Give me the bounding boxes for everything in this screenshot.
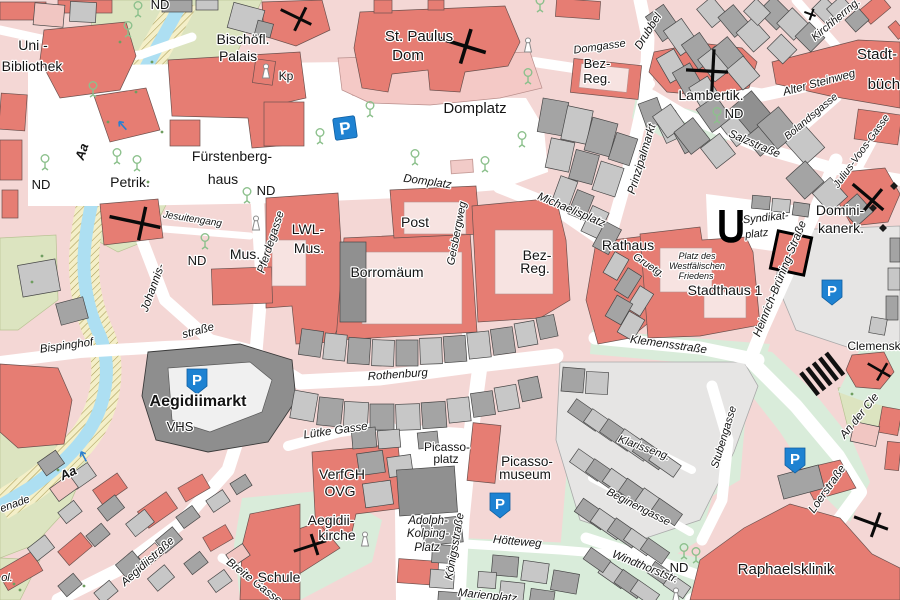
building-gray <box>317 397 344 427</box>
map-label: ol. <box>1 572 13 584</box>
chapel-icon <box>362 532 369 546</box>
vegetation-dot <box>13 583 16 586</box>
map-label: platz <box>744 227 770 242</box>
map-label: Rathaus <box>602 237 654 253</box>
map-label: Dom <box>392 47 424 64</box>
map-label: Kp <box>279 69 294 83</box>
building-salmon <box>0 140 22 180</box>
map-viewport: PPPPPNDUni -BibliothekBischöfl.PalaisKpN… <box>0 0 900 600</box>
map-label: Adolph- <box>407 515 448 527</box>
chapel-icon <box>263 64 270 78</box>
map-label: platz <box>433 452 458 466</box>
building-gray <box>869 317 888 336</box>
building-gray <box>370 404 394 430</box>
vegetation-dot <box>83 585 86 588</box>
map-label: ND <box>151 0 170 12</box>
map-label: Raphaelsklinik <box>738 561 835 578</box>
building-gray <box>447 397 471 423</box>
map-label: büche <box>868 76 900 93</box>
building-gray <box>470 391 495 418</box>
chapel-icon <box>253 216 260 230</box>
map-label: ND <box>188 253 207 268</box>
map-label: Kolping- <box>407 528 449 540</box>
vegetation-dot <box>119 41 122 44</box>
domplatz-podium <box>451 159 474 174</box>
vegetation-dot <box>151 61 154 64</box>
map-label: Platz des <box>678 251 716 261</box>
building-salmon <box>374 0 392 13</box>
map-label: Aegidii- <box>308 512 355 528</box>
building-gray <box>518 376 542 402</box>
building-gray <box>561 367 585 393</box>
map-label: Platz <box>414 542 440 554</box>
map-label: Uni - <box>18 37 48 53</box>
vegetation-dot <box>135 91 138 94</box>
map-label: Aegidiimarkt <box>150 393 248 410</box>
map-label: Reg. <box>583 71 610 86</box>
map-label: Lambertik. <box>678 87 743 103</box>
building-gray <box>514 320 538 347</box>
building-gray <box>33 3 65 28</box>
building-gray <box>298 329 323 358</box>
map-label: Schule <box>258 569 301 585</box>
map-label: museum <box>499 467 551 482</box>
building-gray <box>550 570 579 594</box>
map-label: haus <box>208 171 238 187</box>
building-salmon <box>428 0 444 10</box>
map-label: Petrik. <box>110 174 150 190</box>
map-label: Domini- <box>816 202 865 218</box>
map-label: Domplatz <box>443 100 506 117</box>
map-label: Palais <box>219 48 257 64</box>
building-gray <box>886 296 898 320</box>
map-label: kanerk. <box>818 220 864 236</box>
building-gray <box>396 340 418 366</box>
building-gray <box>396 466 457 516</box>
vegetation-dot <box>41 255 44 258</box>
building-salmon <box>555 0 600 20</box>
building-gray <box>347 337 371 364</box>
vegetation-dot <box>19 589 22 592</box>
map-label: LWL- <box>292 221 325 237</box>
building-gray <box>888 268 900 290</box>
building-gray <box>443 335 467 362</box>
parking-letter: P <box>790 451 800 468</box>
map-label: OVG <box>324 483 355 499</box>
map-label: Clemensk <box>847 339 900 353</box>
vegetation-dot <box>31 281 34 284</box>
building-gray <box>396 404 421 431</box>
map-label: St. Paulus <box>385 28 453 45</box>
building-gray <box>467 331 492 359</box>
chapel-icon <box>525 38 532 52</box>
building-gray <box>421 401 447 429</box>
building-gray <box>751 195 770 210</box>
map-label: ND <box>32 177 51 192</box>
map-label: Bibliothek <box>2 58 64 74</box>
building-salmon <box>0 93 27 131</box>
building-gray <box>340 242 366 322</box>
map-label: Borromäum <box>350 264 423 280</box>
map-label: VerfGH <box>319 466 365 482</box>
building-gray <box>585 371 608 394</box>
map-label: Reg. <box>520 260 550 276</box>
map-label: Post <box>401 214 429 230</box>
building-salmon <box>264 102 304 146</box>
building-salmon <box>2 190 18 218</box>
city-map-canvas[interactable]: PPPPPNDUni -BibliothekBischöfl.PalaisKpN… <box>0 0 900 600</box>
vegetation-dot <box>851 393 854 396</box>
building-gray <box>792 202 810 217</box>
map-label: Mus. <box>230 246 260 262</box>
parking-letter: P <box>192 372 202 389</box>
building-gray <box>521 560 550 583</box>
map-label: Stadthaus 1 <box>688 282 763 298</box>
building-gray <box>196 0 218 10</box>
map-label: ND <box>257 183 276 198</box>
parking-icon: P <box>333 116 358 141</box>
map-label: Fürstenberg- <box>192 148 272 164</box>
map-label: ND <box>725 106 744 121</box>
map-label: Mus. <box>294 240 324 256</box>
building-salmon <box>170 120 200 146</box>
vegetation-dot <box>161 131 164 134</box>
map-label: kirche <box>318 527 356 543</box>
vegetation-dot <box>107 121 110 124</box>
building-salmon <box>467 423 501 484</box>
building-gray <box>494 384 520 411</box>
building-gray <box>490 327 515 356</box>
map-label: Bischöfl. <box>217 31 270 47</box>
map-label: VHS <box>167 419 194 434</box>
building-gray <box>18 259 61 297</box>
building-gray <box>372 340 395 367</box>
building-gray <box>69 1 96 22</box>
building-gray <box>890 238 900 262</box>
parking-letter: P <box>827 283 837 300</box>
map-label: Friedens <box>678 271 714 281</box>
building-gray <box>290 390 318 422</box>
map-label: ND <box>670 560 689 575</box>
parking-letter: P <box>495 496 505 513</box>
building-salmon <box>885 441 900 470</box>
building-gray <box>323 333 348 361</box>
building-gray <box>420 338 443 365</box>
building-salmon <box>0 364 72 448</box>
building-gray <box>362 480 393 508</box>
map-label: Stadt- <box>857 46 897 63</box>
map-label: Bez- <box>584 56 611 71</box>
building-gray <box>477 571 496 588</box>
map-label: Westfälischen <box>669 261 725 271</box>
building-gray <box>377 429 400 449</box>
